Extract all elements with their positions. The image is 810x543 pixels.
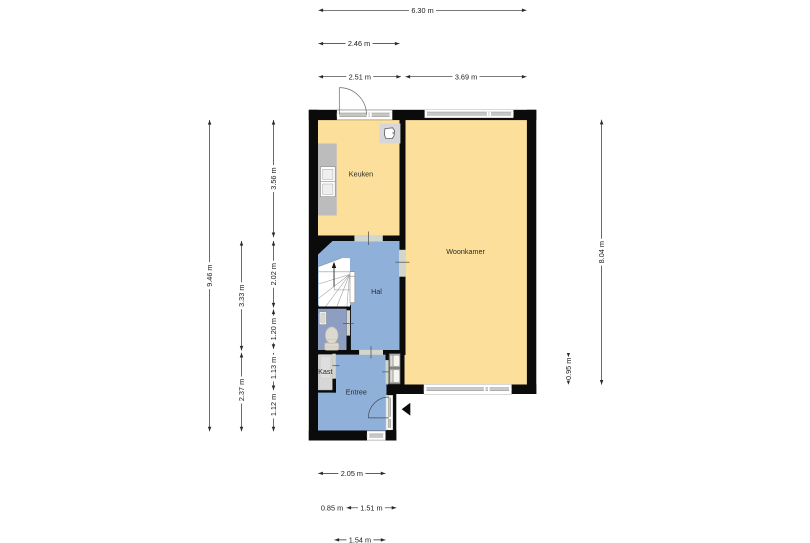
svg-text:6.30 m: 6.30 m [411,6,433,15]
svg-text:0.85 m: 0.85 m [321,503,343,512]
svg-text:3.56 m: 3.56 m [269,167,278,189]
svg-text:2.46 m: 2.46 m [348,39,370,48]
svg-text:1.51 m: 1.51 m [360,503,382,512]
svg-text:1.20 m: 1.20 m [269,318,278,340]
svg-text:2.37 m: 2.37 m [237,379,246,401]
svg-text:Woonkamer: Woonkamer [446,247,485,256]
svg-text:Entree: Entree [346,388,367,397]
svg-text:Hal: Hal [371,287,382,296]
svg-text:1.54 m: 1.54 m [349,536,371,543]
svg-text:3.33 m: 3.33 m [237,285,246,307]
svg-text:Kast: Kast [318,367,332,376]
svg-text:2.51 m: 2.51 m [349,72,371,81]
svg-text:3.69 m: 3.69 m [455,72,477,81]
svg-text:1.12 m: 1.12 m [269,394,278,416]
svg-text:2.02 m: 2.02 m [269,263,278,285]
svg-text:9.46 m: 9.46 m [205,264,214,286]
svg-text:1.13 m: 1.13 m [269,357,278,379]
svg-text:Keuken: Keuken [349,170,373,179]
svg-text:8.04 m: 8.04 m [597,241,606,263]
svg-text:0.95 m: 0.95 m [564,358,573,380]
svg-text:2.05 m: 2.05 m [341,469,363,478]
